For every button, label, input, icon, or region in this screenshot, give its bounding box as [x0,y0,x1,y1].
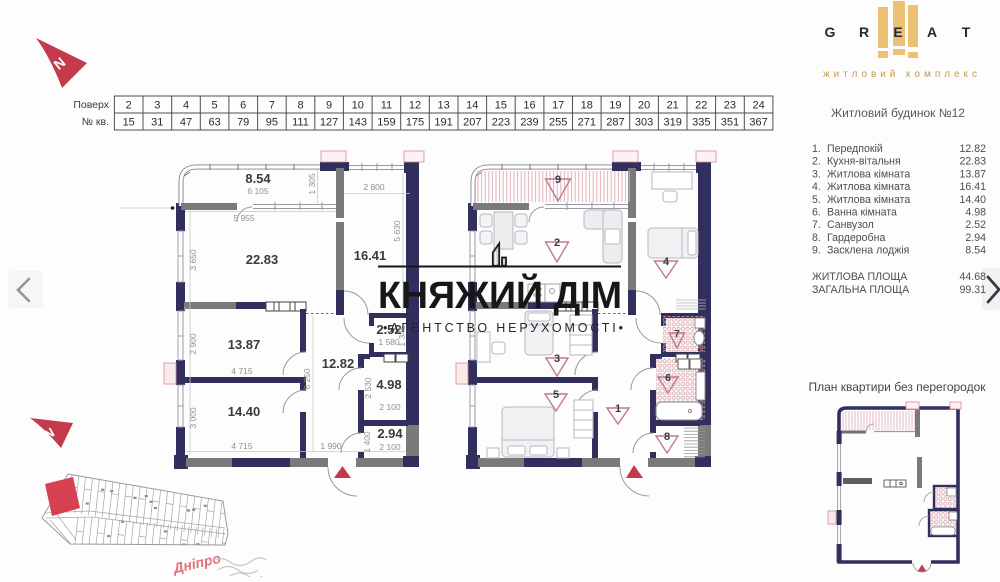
svg-text:7: 7 [674,329,680,340]
svg-text:18: 18 [581,100,593,112]
svg-text:17: 17 [552,100,564,112]
svg-text:15: 15 [495,100,507,112]
svg-text:3: 3 [154,100,160,112]
svg-text:2 100: 2 100 [379,402,401,412]
svg-text:№ кв.: № кв. [82,116,109,128]
svg-text:191: 191 [434,117,452,129]
svg-text:Кухня-вітальня: Кухня-вітальня [827,156,901,168]
svg-text:Гардеробна: Гардеробна [827,232,885,244]
svg-text:Ванна кімната: Ванна кімната [827,207,897,219]
svg-text:6: 6 [240,100,246,112]
svg-text:E: E [893,24,902,40]
svg-text:3: 3 [554,353,560,365]
svg-text:4.: 4. [812,181,821,193]
svg-text:6.: 6. [812,207,821,219]
svg-text:319: 319 [664,117,682,129]
svg-text:2 530: 2 530 [363,377,373,399]
svg-text:4: 4 [663,256,670,268]
svg-text:ЗАГАЛЬНА ПЛОЩА: ЗАГАЛЬНА ПЛОЩА [812,284,910,296]
svg-text:44.68: 44.68 [959,271,986,283]
svg-text:2.94: 2.94 [965,232,986,244]
svg-text:367: 367 [749,117,767,129]
svg-text:6 105: 6 105 [247,186,269,196]
svg-text:4 715: 4 715 [231,441,253,451]
svg-text:2 800: 2 800 [363,182,385,192]
svg-text:63: 63 [208,117,220,129]
svg-text:2.52: 2.52 [965,219,986,231]
svg-text:Передпокій: Передпокій [827,143,883,155]
svg-text:12: 12 [409,100,421,112]
svg-text:23: 23 [724,100,736,112]
svg-text:1 400: 1 400 [362,431,372,453]
svg-text:Санвузол: Санвузол [827,219,874,231]
svg-text:13.87: 13.87 [959,168,986,180]
svg-text:2.: 2. [812,156,821,168]
svg-text:13: 13 [437,100,449,112]
svg-text:159: 159 [377,117,395,129]
svg-text:303: 303 [635,117,653,129]
svg-text:4.98: 4.98 [965,207,986,219]
svg-text:2: 2 [554,237,560,249]
svg-text:8.54: 8.54 [965,245,986,257]
svg-text:16.41: 16.41 [959,181,986,193]
svg-text:Житлова кімната: Житлова кімната [827,194,910,206]
svg-text:20: 20 [638,100,650,112]
svg-text:255: 255 [549,117,567,129]
svg-text:5 955: 5 955 [233,213,255,223]
svg-text:•АГЕНТСТВО НЕРУХОМОСТІ•: •АГЕНТСТВО НЕРУХОМОСТІ• [383,321,623,335]
svg-text:14: 14 [466,100,478,112]
svg-text:4: 4 [183,100,189,112]
svg-text:239: 239 [520,117,538,129]
svg-text:T: T [962,24,971,40]
svg-text:3 650: 3 650 [188,249,198,271]
svg-text:79: 79 [237,117,249,129]
svg-text:223: 223 [492,117,510,129]
svg-text:12.82: 12.82 [322,356,355,371]
svg-text:Житлова кімната: Житлова кімната [827,181,910,193]
svg-text:24: 24 [752,100,764,112]
svg-text:175: 175 [406,117,424,129]
svg-text:14.40: 14.40 [228,404,261,419]
svg-text:1 305: 1 305 [307,173,317,195]
svg-text:19: 19 [609,100,621,112]
svg-text:16: 16 [523,100,535,112]
svg-text:95: 95 [266,117,278,129]
svg-text:2 100: 2 100 [379,442,401,452]
svg-text:КНЯЖИЙ ДІМ: КНЯЖИЙ ДІМ [378,272,622,317]
svg-text:10: 10 [352,100,364,112]
svg-text:8.: 8. [812,232,821,244]
svg-text:14.40: 14.40 [959,194,986,206]
svg-text:6: 6 [665,373,671,384]
svg-text:16.41: 16.41 [354,248,387,263]
svg-text:335: 335 [692,117,710,129]
svg-text:9: 9 [555,174,561,186]
svg-text:8: 8 [297,100,303,112]
svg-text:47: 47 [180,117,192,129]
svg-text:22.83: 22.83 [959,156,986,168]
svg-text:ЖИТЛОВА ПЛОЩА: ЖИТЛОВА ПЛОЩА [812,271,908,283]
svg-text:9.: 9. [812,245,821,257]
svg-text:21: 21 [667,100,679,112]
svg-text:5 630: 5 630 [392,220,402,242]
svg-text:12.82: 12.82 [959,143,986,155]
svg-text:1: 1 [615,403,621,415]
svg-text:13.87: 13.87 [228,337,261,352]
svg-text:Поверх: Поверх [73,99,109,111]
svg-text:11: 11 [381,100,392,112]
svg-text:5: 5 [212,100,218,112]
svg-text:Житловий будинок №12: Житловий будинок №12 [831,106,965,120]
svg-text:143: 143 [349,117,367,129]
svg-text:207: 207 [463,117,481,129]
svg-text:15: 15 [123,117,135,129]
svg-text:351: 351 [721,117,739,129]
svg-text:127: 127 [320,117,338,129]
svg-text:3 000: 3 000 [188,407,198,429]
svg-text:287: 287 [606,117,624,129]
svg-text:2: 2 [126,100,132,112]
svg-text:22: 22 [695,100,707,112]
svg-text:8: 8 [664,431,670,443]
svg-text:G: G [825,24,836,40]
svg-text:4.98: 4.98 [376,377,401,392]
svg-text:7: 7 [269,100,275,112]
svg-text:Житлова кімната: Житлова кімната [827,168,910,180]
svg-text:5: 5 [553,389,559,401]
svg-text:Засклена лоджія: Засклена лоджія [827,245,909,257]
svg-text:5.: 5. [812,194,821,206]
svg-text:22.83: 22.83 [246,252,279,267]
svg-text:План квартири без перегородок: План квартири без перегородок [808,380,986,394]
svg-text:8.54: 8.54 [245,171,271,186]
svg-text:9: 9 [326,100,332,112]
svg-text:3.: 3. [812,168,821,180]
svg-text:1.: 1. [812,143,821,155]
svg-text:271: 271 [578,117,596,129]
svg-text:111: 111 [292,117,309,129]
svg-text:1 990: 1 990 [320,441,342,451]
svg-text:житловий комплекс: житловий комплекс [823,69,977,80]
svg-text:4 715: 4 715 [231,366,253,376]
svg-text:31: 31 [151,117,163,129]
svg-text:2.94: 2.94 [377,426,403,441]
svg-text:R: R [859,24,869,40]
svg-text:A: A [927,24,937,40]
svg-text:6 250: 6 250 [302,368,312,390]
svg-text:7.: 7. [812,219,821,231]
svg-text:2 900: 2 900 [188,333,198,355]
svg-text:99.31: 99.31 [959,284,986,296]
